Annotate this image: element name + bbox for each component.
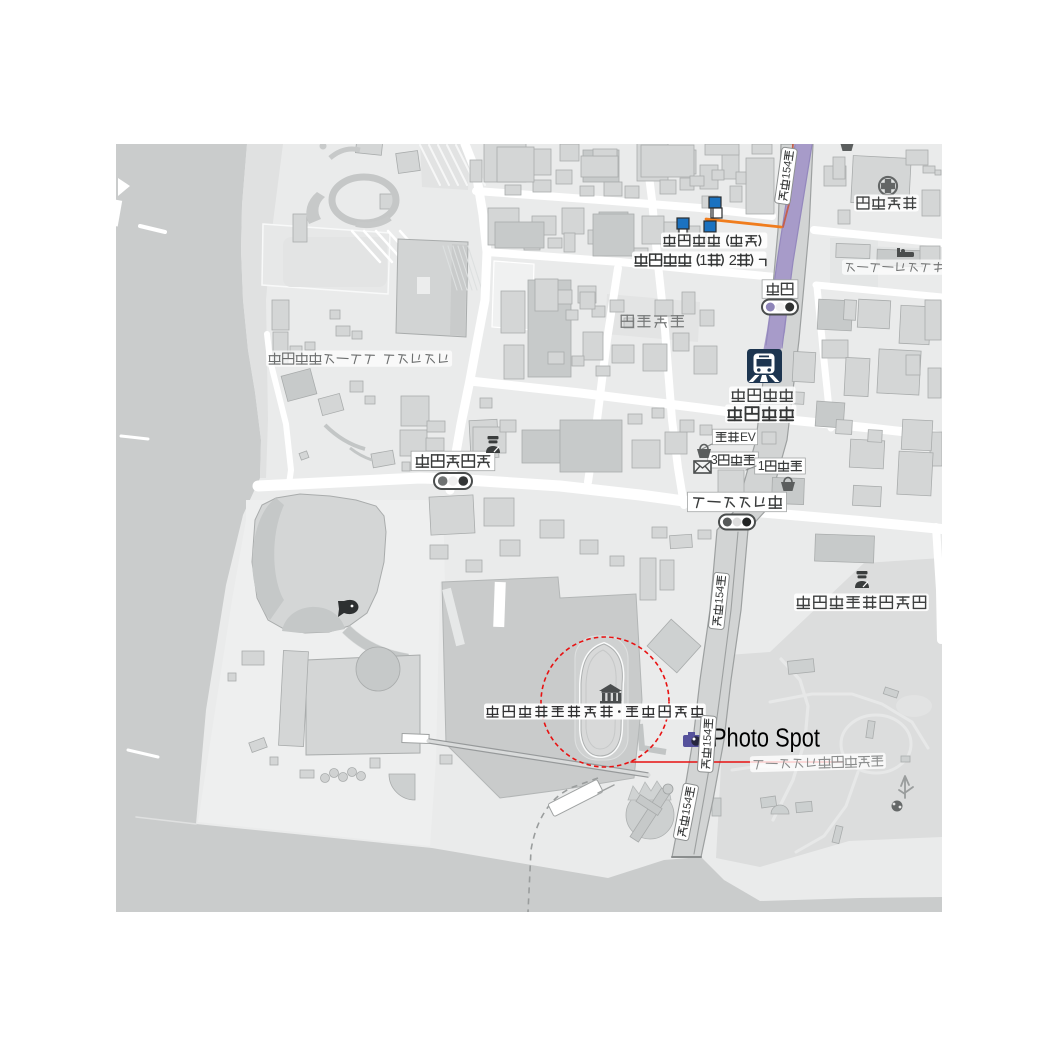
svg-text:4: 4 bbox=[715, 585, 728, 592]
svg-text:2: 2 bbox=[729, 253, 737, 269]
svg-text:1: 1 bbox=[699, 253, 707, 269]
svg-text:1: 1 bbox=[758, 459, 765, 473]
svg-text:Photo Spot: Photo Spot bbox=[712, 725, 820, 753]
svg-text:4: 4 bbox=[702, 728, 714, 735]
svg-text:V: V bbox=[748, 430, 757, 444]
